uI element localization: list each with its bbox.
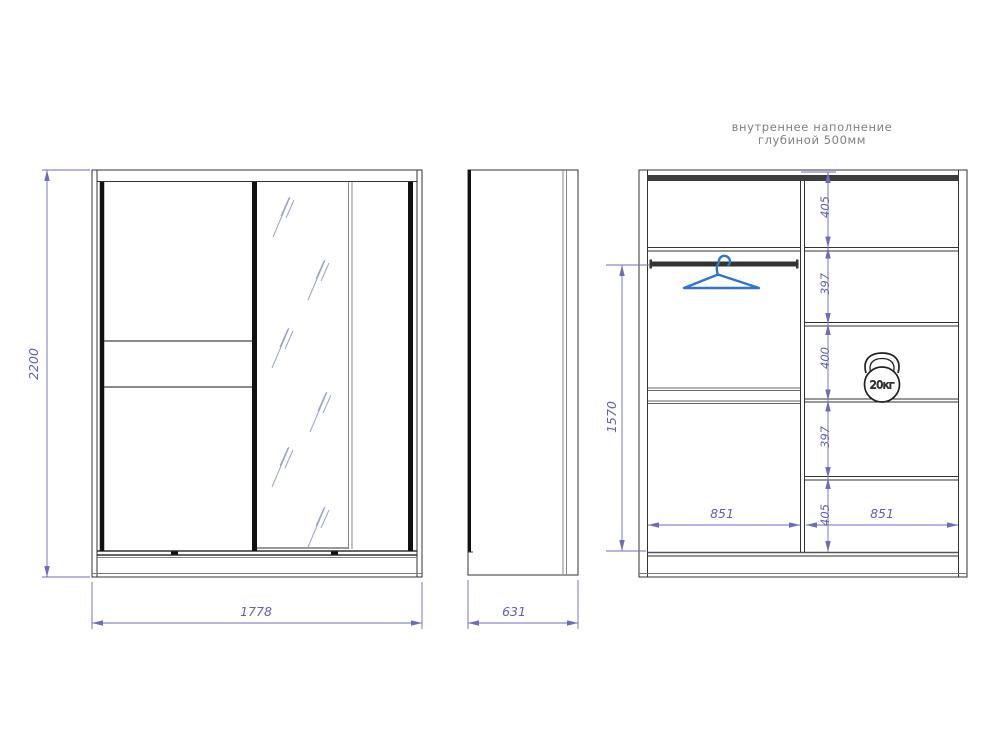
internal-carcass [639,170,967,577]
internal-view: 20кг [639,170,967,577]
gap-label-1: 405 [818,196,832,218]
mirror-sliding-door [257,182,352,549]
weight-limit-label: 20кг [870,379,895,392]
gap-label-2: 397 [818,272,832,295]
internal-note-line2: глубиной 500мм [758,133,866,147]
gap-label-4: 397 [818,425,832,448]
top-panel [648,175,959,181]
mirror-glare-marks [272,197,331,547]
kettlebell-icon [865,353,900,402]
front-height-label: 2200 [26,348,41,380]
technical-drawing-canvas: 20кг [0,0,1000,750]
front-view [92,170,422,577]
gap-label-3: 400 [818,347,832,369]
left-section-width-label: 851 [710,506,734,521]
door-roller-icon [171,552,178,555]
front-width-label: 1778 [240,604,272,619]
side-depth-label: 631 [502,604,526,619]
dimension-front-height [42,170,90,577]
hanging-rod [651,262,797,267]
front-bottom-track [97,551,417,558]
door-roller-icon [331,552,338,555]
left-compartment [648,248,800,404]
left-shelf-band [648,388,800,404]
wardrobe-drawing: 20кг [0,0,1000,750]
left-sliding-door [102,182,255,551]
internal-note-line1: внутреннее наполнение [732,120,893,134]
gap-label-5: 405 [818,504,832,526]
rod-height-label: 1570 [604,401,619,433]
hanger-icon [684,256,759,288]
right-section-width-label: 851 [870,506,894,521]
side-view [468,170,578,575]
